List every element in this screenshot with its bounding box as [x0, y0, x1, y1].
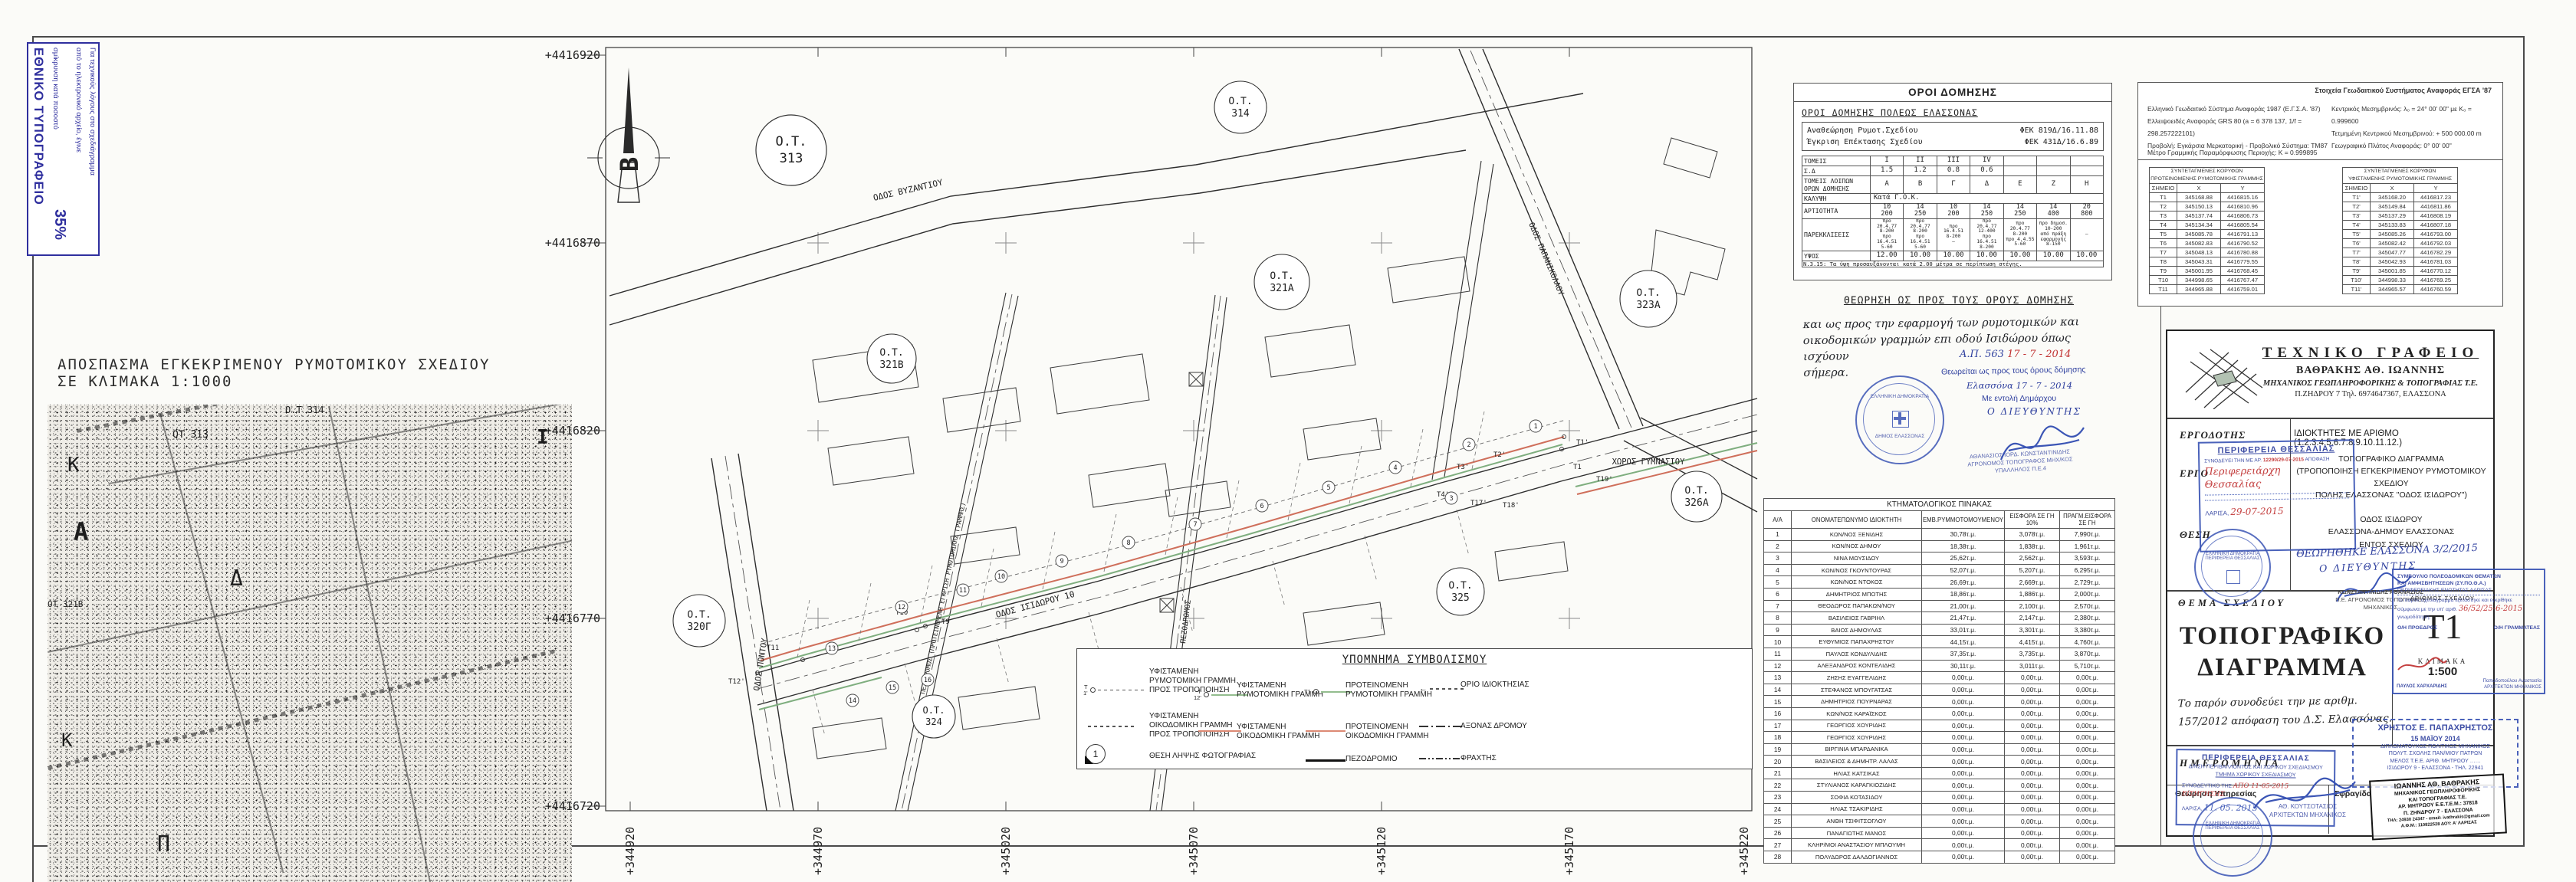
cadastral-cell: 2,570τ.μ. — [2060, 600, 2115, 612]
cadastral-cell: 33,01τ.μ. — [1922, 624, 2005, 636]
cadastral-cell: 3 — [1764, 552, 1792, 565]
cadastral-row: 1 ΚΩΝ/ΝΟΣ ΞΕΝΙΔΗΣ 30,78τ.μ. 3,078τ.μ. 7,… — [1764, 529, 2115, 541]
coords-cell: 345150.13 — [2177, 202, 2221, 211]
coords-cell: 4416769.25 — [2414, 275, 2458, 284]
north-arrow-icon: Β — [587, 67, 670, 202]
cadastral-cell: ΔΗΜΗΤΡΙΟΣ ΜΠΟΤΗΣ — [1792, 588, 1922, 600]
legend-symbol-prefix: Τ 1' — [1083, 684, 1088, 696]
geo-line: Τετμημένη Κεντρικού Μεσημβρινού: + 500 0… — [2331, 127, 2496, 139]
stamp-text: ΔΗΜΟΣ ΕΛΑΣΣΟΝΑΣ — [1857, 434, 1943, 439]
stamp-text: ΕΛΛΗΝΙΚΗ ΔΗΜΟΚΡΑΤΙΑ — [1857, 394, 1943, 399]
cadastral-cell: 3,735τ.μ. — [2005, 648, 2060, 660]
stamp-text: ΕΛΛΗΝΙΚΗ ΔΗΜΟΚΡΑΤΙΑ ΠΕΡΙΦΕΡΕΙΑ ΘΕΣΣΑΛΙΑΣ — [2196, 552, 2269, 561]
terms-cell: – — [2070, 218, 2103, 251]
point-circle-icon — [1204, 692, 1209, 697]
cadastral-cell: 20 — [1764, 756, 1792, 768]
cadastral-cell: 6,295τ.μ. — [2060, 564, 2115, 576]
stamp-name: ΠΑΥΛΟΣ ΧΑΡΧΑΡΙΔΗΣ — [2397, 684, 2447, 690]
coords-cell: 4416793.00 — [2414, 229, 2458, 238]
cadastral-cell: 7,990τ.μ. — [2060, 529, 2115, 541]
terms-cell: ΙV — [1970, 156, 2003, 166]
drawing-title: ΤΟΠΟΓΡΑΦΙΚΟΔΙΑΓΡΑΜΜΑ — [2175, 621, 2390, 684]
stamp-line: γνωμοδότηση. — [2397, 614, 2540, 621]
cadastral-row: 28 ΠΟΛΥΔΩΡΟΣ ΔΑΛΔΟΓΙΑΝΝΟΣ 0,00τ.μ. 0,00τ… — [1764, 851, 2115, 864]
coords-row: Τ6'345082.424416792.03 — [2343, 238, 2458, 248]
cadastral-row: 27 ΚΛΗΡ/ΜΟΙ ΑΝΑΣΤΑΣΙΟΥ ΜΠΛΟΥΜΗ 0,00τ.μ. … — [1764, 839, 2115, 851]
coords-cell: 4416805.54 — [2221, 220, 2265, 229]
stamp-title: ΑΡΧΙΤΕΚΤΩΝ ΜΗΧΑΝΙΚΟΣ — [2242, 812, 2373, 820]
stamp-line: ΑΠΟΦΑΣΗ — [2305, 457, 2329, 463]
cadastral-cell: 0,00τ.μ. — [2005, 743, 2060, 756]
cadastral-title: ΚΤΗΜΑΤΟΛΟΓΙΚΟΣ ΠΙΝΑΚΑΣ — [1764, 499, 2115, 511]
terms-cell: 10.00 — [1970, 251, 2003, 261]
cadastral-cell: 26 — [1764, 827, 1792, 839]
block-314: Ο.Τ. 314 — [1214, 81, 1267, 133]
cadastral-cell: 0,00τ.μ. — [2060, 839, 2115, 851]
ergodotis-label: ΕΡΓΟΔΟΤΗΣ — [2180, 429, 2246, 441]
legend-label: ΘΕΣΗ ΛΗΨΗΣ ΦΩΤΟΓΡΑΦΙΑΣ — [1149, 752, 1256, 761]
cadastral-cell: 0,00τ.μ. — [2005, 684, 2060, 696]
coords-cell: Τ6 — [2150, 238, 2177, 248]
block-313: Ο.Τ. 313 — [756, 115, 826, 185]
cadastral-cell: ΑΝΘΗ ΤΣΙΦΙΤΣΟΓΛΟΥ — [1792, 815, 1922, 828]
cadastral-row: 4 ΚΩΝ/ΝΟΣ ΓΚΟΥΝΤΟΥΡΑΣ 52,07τ.μ. 5,207τ.μ… — [1764, 564, 2115, 576]
cadastral-cell: 2,729τ.μ. — [2060, 576, 2115, 589]
cadastral-cell: 10 — [1764, 636, 1792, 648]
coords-cell: 4416807.18 — [2414, 220, 2458, 229]
office-profession: ΜΗΧΑΝΙΚΟΣ ΓΕΩΠΛΗΡΟΦΟΡΙΚΗΣ & ΤΟΠΟΓΡΑΦΙΑΣ … — [2259, 379, 2482, 388]
cadastral-cell: 19 — [1764, 743, 1792, 756]
office-logo-icon — [2184, 348, 2265, 409]
cadastral-row: 6 ΔΗΜΗΤΡΙΟΣ ΜΠΟΤΗΣ 18,86τ.μ. 1,886τ.μ. 2… — [1764, 588, 2115, 600]
cadastral-cell: 44,15τ.μ. — [1922, 636, 2005, 648]
coords-cell: 345134.34 — [2177, 220, 2221, 229]
cadastral-cell: ΚΩΝ/ΝΟΣ ΓΚΟΥΝΤΟΥΡΑΣ — [1792, 564, 1922, 576]
cadastral-cell: 12 — [1764, 660, 1792, 672]
cadastral-cell: ΖΗΣΗΣ ΕΥΑΓΓΕΛΙΔΗΣ — [1792, 672, 1922, 684]
cadastral-cell: 4,415τ.μ. — [2005, 636, 2060, 648]
cadastral-cell: 18 — [1764, 732, 1792, 744]
block-321a: Ο.Τ. 321Α — [1254, 254, 1309, 310]
cadastral-cell: ΒΙΡΓΙΝΙΑ ΜΠΑΡΔΑΝΙΚΑ — [1792, 743, 1922, 756]
cadastral-cell: 1,886τ.μ. — [2005, 588, 2060, 600]
terms-cell: ΙΙ — [1904, 156, 1937, 166]
cadastral-cell: ΔΗΜΗΤΡΙΟΣ ΠΟΥΡΝΑΡΑΣ — [1792, 696, 1922, 708]
cadastral-cell: 0,00τ.μ. — [1922, 684, 2005, 696]
cadastral-cell: 17 — [1764, 720, 1792, 732]
coords-row: Τ1345168.884416815.16 — [2150, 192, 2265, 202]
coords-cell: 4416810.96 — [2221, 202, 2265, 211]
cadastral-cell: 26,69τ.μ. — [1922, 576, 2005, 589]
cadastral-cell: 0,00τ.μ. — [2005, 696, 2060, 708]
terms-cell: προ δημοσ. 10-200 από πράξη εφαρμογής 8-… — [2037, 218, 2070, 251]
legend-label: ΠΡΟΤΕΙΝΟΜΕΝΗ ΟΙΚΟΔΟΜΙΚΗ ΓΡΑΜΜΗ — [1345, 723, 1429, 741]
office-name: ΒΑΘΡΑΚΗΣ ΑΘ. ΙΩΑΝΝΗΣ — [2259, 365, 2482, 377]
cadastral-cell: 0,00τ.μ. — [1922, 827, 2005, 839]
cadastral-cell: 21,00τ.μ. — [1922, 600, 2005, 612]
cadastral-cell: 0,00τ.μ. — [2060, 779, 2115, 792]
cadastral-cell: 18,86τ.μ. — [1922, 588, 2005, 600]
coords-cell: 4416779.55 — [2221, 257, 2265, 266]
fek-value: ΦΕΚ 431Δ/16.6.89 — [2025, 136, 2098, 148]
legend-symbol-sidewalk — [1306, 759, 1345, 762]
terms-row-label: ΚΑΛΥΨΗ — [1802, 194, 1871, 204]
terms-cell: 10.00 — [2070, 251, 2103, 261]
coords-row: Τ8'345042.934416781.03 — [2343, 257, 2458, 266]
legend-symbol-prefix: Τ 12' — [1194, 689, 1201, 700]
coords-row: Τ3345137.744416806.73 — [2150, 211, 2265, 220]
coords-cell: Τ4 — [2150, 220, 2177, 229]
svg-text:314: 314 — [1231, 108, 1250, 120]
protocol-number: Α.Π. 563 — [1960, 349, 2004, 360]
coords-title: ΣΥΝΤΕΤΑΓΜΕΝΕΣ ΚΟΡΥΦΩΝΠΡΟΤΕΙΝΟΜΕΝΗΣ ΡΥΜΟΤ… — [2150, 169, 2263, 182]
legend-label: ΥΦΙΣΤΑΜΕΝΗ ΟΙΚΟΔΟΜΙΚΗ ΓΡΑΜΜΗ — [1237, 723, 1320, 741]
legend-symbol-proposed-oik — [1306, 730, 1345, 732]
cadastral-row: 20 ΒΑΣΙΛΕΙΟΣ & ΔΗΜΗΤΡ. ΛΑΛΑΣ 0,00τ.μ. 0,… — [1764, 756, 2115, 768]
t-label: Τ18' — [1503, 502, 1520, 510]
coords-cell: Τ8' — [2343, 257, 2371, 266]
cadastral-cell: 0,00τ.μ. — [2060, 743, 2115, 756]
block-326a: Ο.Τ. 326Α — [1671, 471, 1722, 522]
svg-text:323Α: 323Α — [1636, 300, 1660, 311]
terms-cell: προ 20.4.77 8-200 προ 16.4.51 5-60 — [1870, 218, 1903, 251]
t-label: Τ1 — [1573, 464, 1582, 471]
cadastral-cell: ΠΑΝΑΓΙΩΤΗΣ ΜΑΝΟΣ — [1792, 827, 1922, 839]
cadastral-cell: 0,00τ.μ. — [1922, 767, 2005, 779]
cadastral-cell: 0,00τ.μ. — [2005, 792, 2060, 804]
coords-row: Τ11'344965.574416760.59 — [2343, 284, 2458, 293]
t-label: Τ19' — [1596, 476, 1613, 484]
cadastral-cell: 0,00τ.μ. — [2005, 779, 2060, 792]
coords-cell: Τ1' — [2343, 192, 2371, 202]
cadastral-row: 16 ΚΩΝ/ΝΟΣ ΚΑΡΑΪΣΚΟΣ 0,00τ.μ. 0,00τ.μ. 0… — [1764, 707, 2115, 720]
coords-cell: 4416759.01 — [2221, 284, 2265, 293]
terms-cell: 10.00 — [1937, 251, 1970, 261]
coords-cell: 4416781.03 — [2414, 257, 2458, 266]
stamp-title: ΑΡΧΙΤΕΚΤΩΝ ΜΗΧΑΝΙΚΟΣ — [2484, 684, 2541, 690]
coords-cell: 4416806.73 — [2221, 211, 2265, 220]
block-321b: Ο.Τ. 321Β — [867, 334, 916, 383]
svg-text:321Β: 321Β — [879, 359, 903, 371]
legend-label: ΑΞΟΝΑΣ ΔΡΟΜΟΥ — [1460, 722, 1527, 731]
cadastral-cell: 0,00τ.μ. — [2005, 767, 2060, 779]
coords-cell: 345043.31 — [2177, 257, 2221, 266]
cadastral-cell: 0,00τ.μ. — [2060, 851, 2115, 864]
coords-cell: Τ3 — [2150, 211, 2177, 220]
coords-cell: 345085.26 — [2371, 229, 2414, 238]
cadastral-section: ΚΤΗΜΑΤΟΛΟΓΙΚΟΣ ΠΙΝΑΚΑΣ Α/ΑΟΝΟΜΑΤΕΠΩΝΥΜΟ … — [1763, 498, 2114, 864]
cadastral-cell: 0,00τ.μ. — [1922, 696, 2005, 708]
stamp-city: ΛΑΡΙΣΑ, — [2182, 807, 2203, 812]
stamp-line: ΙΣΙΔΩΡΟΥ 9 - ΕΛΑΣΣΟΝΑ - ΤΗΛ. 22941 — [2357, 765, 2514, 772]
svg-text:13: 13 — [828, 645, 836, 653]
coords-cell: Τ10 — [2150, 275, 2177, 284]
coords-header: Χ — [2371, 183, 2414, 192]
cadastral-row: 15 ΔΗΜΗΤΡΙΟΣ ΠΟΥΡΝΑΡΑΣ 0,00τ.μ. 0,00τ.μ.… — [1764, 696, 2115, 708]
cadastral-cell: 0,00τ.μ. — [2005, 827, 2060, 839]
cadastral-row: 7 ΘΕΟΔΩΡΟΣ ΠΑΠΑΚΩΝ/ΝΟΥ 21,00τ.μ. 2,100τ.… — [1764, 600, 2115, 612]
coords-cell: Τ6' — [2343, 238, 2371, 248]
cadastral-cell: 52,07τ.μ. — [1922, 564, 2005, 576]
svg-text:324: 324 — [925, 716, 942, 727]
cadastral-cell: 2,100τ.μ. — [2005, 600, 2060, 612]
cadastral-cell: 21,47τ.μ. — [1922, 612, 2005, 625]
coords-row: Τ4'345133.834416807.18 — [2343, 220, 2458, 229]
cadastral-cell: 25,62τ.μ. — [1922, 552, 2005, 565]
cadastral-cell: ΚΩΝ/ΝΟΣ ΚΑΡΑΪΣΚΟΣ — [1792, 707, 1922, 720]
geo-line: Κεντρικός Μεσημβρινός: λ₀ = 24° 00' 00" … — [2331, 103, 2496, 127]
coords-cell: 4416791.13 — [2221, 229, 2265, 238]
cadastral-row: 23 ΣΟΦΙΑ ΚΟΤΑΣΙΔΟΥ 0,00τ.μ. 0,00τ.μ. 0,0… — [1764, 792, 2115, 804]
cadastral-cell: 0,00τ.μ. — [2060, 803, 2115, 815]
theorisi-line3: Με εντολή Δημάρχου — [1982, 394, 2056, 403]
cadastral-row: 19 ΒΙΡΓΙΝΙΑ ΜΠΑΡΔΑΝΙΚΑ 0,00τ.μ. 0,00τ.μ.… — [1764, 743, 2115, 756]
terms-row-label: ΑΡΤΙΟΤΗΤΑ — [1802, 204, 1871, 219]
cadastral-row: 11 ΠΑΥΛΟΣ ΚΟΝΔΥΛΙΔΗΣ 37,35τ.μ. 3,735τ.μ.… — [1764, 648, 2115, 660]
x-label: +345120 — [1375, 827, 1388, 875]
legend-symbol-fence — [1419, 758, 1465, 759]
cadastral-row: 14 ΣΤΕΦΑΝΟΣ ΜΠΟΥΓΑΤΣΑΣ 0,00τ.μ. 0,00τ.μ.… — [1764, 684, 2115, 696]
cadastral-cell: 27 — [1764, 839, 1792, 851]
y-label: +4416870 — [545, 236, 600, 250]
cadastral-cell: ΣΤΕΦΑΝΟΣ ΜΠΟΥΓΑΤΣΑΣ — [1792, 684, 1922, 696]
coords-table-proposed: ΣΥΝΤΕΤΑΓΜΕΝΕΣ ΚΟΡΥΦΩΝΠΡΟΤΕΙΝΟΜΕΝΗΣ ΡΥΜΟΤ… — [2149, 167, 2265, 294]
coords-cell: 345042.93 — [2371, 257, 2414, 266]
x-label: +345170 — [1562, 827, 1576, 875]
legend-symbol-existing-rym-mod: Τ 1' — [1083, 684, 1147, 696]
stamp-name: ΧΡΗΣΤΟΣ Ε. ΠΑΠΑΧΡΗΣΤΟΣ — [2357, 723, 2514, 734]
cadastral-cell: 0,00τ.μ. — [1922, 672, 2005, 684]
coords-cell: 345133.83 — [2371, 220, 2414, 229]
coords-row: Τ5345085.784416791.13 — [2150, 229, 2265, 238]
office-title: ΤΕΧΝΙΚΟ ΓΡΑΦΕΙΟ — [2259, 345, 2482, 362]
coords-cell: 4416768.45 — [2221, 266, 2265, 275]
terms-cell: Β — [1904, 176, 1937, 194]
coords-row: Τ8345043.314416779.55 — [2150, 257, 2265, 266]
stamp-city: ΛΑΡΙΣΑ, — [2205, 510, 2229, 517]
cadastral-cell: ΗΛΙΑΣ ΚΑΤΣΙΚΑΣ — [1792, 767, 1922, 779]
terms-cell: 1.2 — [1904, 166, 1937, 176]
svg-text:12: 12 — [898, 604, 905, 611]
street-label-pezodromos: ΠΕΖΟΔΡΟΜΟΣ — [1179, 599, 1193, 644]
stamp-line: ΣΥΝΟΔΕΥΕΙ ΤΗΝ ΜΕ ΑΡ. — [2204, 457, 2262, 464]
geodetic-box: Στοιχεία Γεωδαιτικού Συστήματος Αναφοράς… — [2137, 82, 2503, 307]
terms-cell — [2003, 156, 2036, 166]
cadastral-cell: 0,00τ.μ. — [1922, 707, 2005, 720]
coords-header: ΣΗΜΕΙΟ — [2150, 183, 2177, 192]
cadastral-cell: 3,078τ.μ. — [2005, 529, 2060, 541]
terms-cell: 0.8 — [1937, 166, 1970, 176]
legend-label: ΦΡΑΧΤΗΣ — [1460, 754, 1497, 763]
terms-cell: Κατά Γ.Ο.Κ. — [1870, 194, 2103, 204]
cadastral-cell: ΣΤΥΛΙΑΝΟΣ ΚΑΡΑΓΚΙΟΖΙΔΗΣ — [1792, 779, 1922, 792]
cadastral-cell: ΣΟΦΙΑ ΚΟΤΑΣΙΔΟΥ — [1792, 792, 1922, 804]
terms-cell: 14 250 — [2003, 204, 2036, 219]
stamp-script: Περιφερειάρχη Θεσσαλίας — [2204, 464, 2349, 492]
cadastral-cell: ΠΑΥΛΟΣ ΚΟΝΔΥΛΙΔΗΣ — [1792, 648, 1922, 660]
terms-cell — [2070, 156, 2103, 166]
cadastral-cell: 2,147τ.μ. — [2005, 612, 2060, 625]
cadastral-cell: 3,380τ.μ. — [2060, 624, 2115, 636]
legend-title: ΥΠΟΜΝΗΜΑ ΣΥΜΒΟΛΙΣΜΟΥ — [1077, 654, 1752, 666]
x-axis-labels: +344920 +344970 +345020 +345070 +345120 … — [623, 827, 1751, 875]
theorisi-line2: Ελασσόνα 17 - 7 - 2014 — [1967, 380, 2072, 391]
label-gymnasiou: ΧΩΡΟΣ ΓΥΜΝΑΣΙΟΥ — [1612, 457, 1686, 467]
cadastral-cell: 16 — [1764, 707, 1792, 720]
terms-cell: 12.00 — [1870, 251, 1903, 261]
cadastral-cell: ΒΑΙΟΣ ΔΗΜΟΥΛΑΣ — [1792, 624, 1922, 636]
terms-cell: προ 20.4.77 12-400 προ 16.4.51 8-200 — [1970, 218, 2003, 251]
coords-cell: 4416792.03 — [2414, 238, 2458, 248]
t-label: Τ1' — [1576, 439, 1589, 447]
cadastral-row: 21 ΗΛΙΑΣ ΚΑΤΣΙΚΑΣ 0,00τ.μ. 0,00τ.μ. 0,00… — [1764, 767, 2115, 779]
legend-symbol-existing-oik — [1198, 730, 1241, 732]
coords-cell: Τ2' — [2343, 202, 2371, 211]
cadastral-cell: 0,00τ.μ. — [1922, 792, 2005, 804]
cadastral-cell: 3,593τ.μ. — [2060, 552, 2115, 565]
terms-cell: Α — [1870, 176, 1903, 194]
sypotha-stamp: ΣΥΜΒΟΥΛΙΟ ΠΟΛΕΟΔΟΜΙΚΩΝ ΘΕΜΑΤΩΝ ΚΑΙ ΑΜΦΙΣ… — [2392, 569, 2545, 694]
coords-cell: 4416815.16 — [2221, 192, 2265, 202]
terms-box-title: ΟΡΟΙ ΔΟΜΗΣΗΣ — [1794, 84, 2111, 102]
cadastral-cell: 6 — [1764, 588, 1792, 600]
cadastral-header: ΕΜΒ.ΡΥΜΜΟΤΟΜΟΥΜΕΝΟΥ — [1922, 511, 2005, 529]
terms-footnote: Ν.3.15: Τα ύψη προσαυξάνονται κατά 2.00 … — [1802, 261, 2104, 267]
cadastral-cell: 0,00τ.μ. — [1922, 803, 2005, 815]
block-323a: Ο.Τ. 323Α — [1620, 271, 1677, 327]
cadastral-cell: ΒΑΣΙΛΕΙΟΣ ΓΑΒΡΙΗΛ — [1792, 612, 1922, 625]
geo-line: Ελλειψοειδές Αναφοράς GRS 80 (a = 6 378 … — [2147, 115, 2331, 139]
cadastral-row: 2 ΚΩΝ/ΝΟΣ ΔΗΜΟΥ 18,38τ.μ. 1,838τ.μ. 1,96… — [1764, 540, 2115, 552]
terms-cell: 10 200 — [1937, 204, 1970, 219]
coords-cell: 4416808.19 — [2414, 211, 2458, 220]
x-label: +344920 — [623, 827, 637, 875]
block-324: Ο.Τ. 324 — [912, 695, 955, 738]
cadastral-cell: ΠΟΛΥΔΩΡΟΣ ΔΑΛΔΟΓΙΑΝΝΟΣ — [1792, 851, 1922, 864]
svg-text:326Α: 326Α — [1684, 497, 1708, 509]
coords-cell: Τ3' — [2343, 211, 2371, 220]
coords-cell: 345085.78 — [2177, 229, 2221, 238]
terms-cell: 10 200 — [1870, 204, 1903, 219]
terms-cell: Γ — [1937, 176, 1970, 194]
terms-cell — [2070, 166, 2103, 176]
cadastral-row: 17 ΓΕΩΡΓΙΟΣ ΧΟΥΡΙΔΗΣ 0,00τ.μ. 0,00τ.μ. 0… — [1764, 720, 2115, 732]
t-label: Τ3' — [1457, 464, 1469, 471]
coords-row: Τ9'345001.854416770.12 — [2343, 266, 2458, 275]
cadastral-cell: 0,00τ.μ. — [1922, 839, 2005, 851]
cadastral-cell: ΓΕΩΡΓΙΟΣ ΧΟΥΡΙΔΗΣ — [1792, 720, 1922, 732]
svg-text:Ο.Τ.: Ο.Τ. — [1228, 96, 1252, 107]
cadastral-cell: 23 — [1764, 792, 1792, 804]
coords-cell: Τ9 — [2150, 266, 2177, 275]
terms-row-label: ΤΟΜΕΙΣ — [1802, 156, 1871, 166]
cadastral-cell: 2,669τ.μ. — [2005, 576, 2060, 589]
coords-cell: 345048.13 — [2177, 248, 2221, 257]
cadastral-cell: 0,00τ.μ. — [2005, 707, 2060, 720]
cadastral-cell: ΑΛΕΞΑΝΔΡΟΣ ΚΟΝΤΕΛΙΔΗΣ — [1792, 660, 1922, 672]
coords-cell: Τ2 — [2150, 202, 2177, 211]
svg-text:313: 313 — [780, 151, 803, 166]
coords-cell: 345137.29 — [2371, 211, 2414, 220]
cadastral-cell: 22 — [1764, 779, 1792, 792]
terms-table: ΤΟΜΕΙΣΙΙΙΙΙΙΙV Σ.Δ1.51.20.80.6 ΤΟΜΕΙΣ ΛΟ… — [1802, 156, 2104, 267]
cadastral-row: 12 ΑΛΕΞΑΝΔΡΟΣ ΚΟΝΤΕΛΙΔΗΣ 30,11τ.μ. 3,011… — [1764, 660, 2115, 672]
cadastral-cell: 0,00τ.μ. — [2060, 792, 2115, 804]
coords-cell: 345001.95 — [2177, 266, 2221, 275]
street-label-pezodromos-long: ΠΕΖΟΔΡΟΜΟΣ (ΠΡΟΤΕΙΝΟΜΕΝΗ ΕΓΚΡΙΣΗ ΡΥΜΟΤΟΜ… — [919, 502, 967, 695]
signature-icon — [2395, 656, 2449, 676]
cadastral-cell: ΕΥΘΥΜΙΟΣ ΠΑΠΑΧΡΗΣΤΟΥ — [1792, 636, 1922, 648]
coords-cell: Τ5' — [2343, 229, 2371, 238]
terms-cell: 10.00 — [2037, 251, 2070, 261]
protocol-date: 17 - 7 - 2014 — [2007, 349, 2071, 360]
svg-text:Ο.Τ.: Ο.Τ. — [879, 347, 903, 359]
legend-symbol-road-axis — [1419, 726, 1465, 727]
stamp-line: ΚΑΙ ΑΜΦΙΣΒΗΤΗΣΕΩΝ (ΣΥ.ΠΟ.Θ.Α.) — [2397, 580, 2540, 587]
cadastral-cell: 3,870τ.μ. — [2060, 648, 2115, 660]
legend-symbol-existing-oik-mod — [1088, 726, 1137, 727]
stamp-line: ΣΥΜΒΟΥΛΙΟ ΠΟΛΕΟΔΟΜΙΚΩΝ ΘΕΜΑΤΩΝ — [2397, 573, 2540, 580]
coords-cell: Τ11' — [2343, 284, 2371, 293]
x-label: +344970 — [811, 827, 825, 875]
stamp-line: Το παρόν σχεδιάγραμμα εξετάστηκε και εγκ… — [2397, 597, 2540, 604]
svg-text:15: 15 — [889, 684, 896, 692]
svg-text:321Α: 321Α — [1270, 283, 1293, 294]
cadastral-cell: 2,380τ.μ. — [2060, 612, 2115, 625]
svg-text:2: 2 — [1467, 441, 1470, 449]
street-label-vyzantiou: ΟΔΟΣ ΒΥΖΑΝΤΙΟΥ — [872, 177, 945, 203]
svg-text:1: 1 — [1533, 423, 1537, 431]
cadastral-cell: 0,00τ.μ. — [1922, 743, 2005, 756]
terms-cell: Η — [2070, 176, 2103, 194]
stamp-line: ΔΙΠΛΩΜΑΤΟΥΧΟΣ ΠΟΛΙΤΙΚΟΣ ΜΗΧΑΝΙΚΟΣ — [2357, 743, 2514, 750]
cadastral-cell: 0,00τ.μ. — [2060, 672, 2115, 684]
stamp-name: ΑΘ. ΚΟΥΤΣΟΤΑΣΙΟΣ — [2242, 803, 2373, 812]
y-axis-labels: +4416920 +4416870 +4416820 +4416770 +441… — [545, 48, 600, 813]
legend-symbol-property-limit: ← — [1419, 684, 1464, 693]
terms-cell: 0.6 — [1970, 166, 2003, 176]
coords-cell: 4416767.47 — [2221, 275, 2265, 284]
fek-label: Έγκριση Επέκτασης Σχεδίου — [1807, 136, 1923, 148]
legend-box: ΥΠΟΜΝΗΜΑ ΣΥΜΒΟΛΙΣΜΟΥ Τ 1' ΥΦΙΣΤΑΜΕΝΗ ΡΥΜ… — [1076, 648, 1753, 769]
cadastral-cell: ΚΩΝ/ΝΟΣ ΝΤΟΚΟΣ — [1792, 576, 1922, 589]
topographic-diagram-sheet: { "print_stamp": { "title": "ΕΘΝΙΚΟ ΤΥΠΟ… — [0, 0, 2576, 882]
coords-row: Τ2345150.134416810.96 — [2150, 202, 2265, 211]
geodetic-title: Στοιχεία Γεωδαιτικού Συστήματος Αναφοράς… — [2138, 87, 2492, 94]
cadastral-cell: 0,00τ.μ. — [1922, 779, 2005, 792]
coords-cell: 345149.84 — [2371, 202, 2414, 211]
cadastral-cell: 0,00τ.μ. — [2060, 815, 2115, 828]
terms-cell: 14 250 — [1904, 204, 1937, 219]
coords-header: Χ — [2177, 183, 2221, 192]
legend-symbol-prefix: Τ1 — [1304, 689, 1311, 695]
terms-cell: 14 400 — [2037, 204, 2070, 219]
cadastral-cell: 0,00τ.μ. — [2005, 839, 2060, 851]
cadastral-cell: 3,011τ.μ. — [2005, 660, 2060, 672]
stamp-role: Ο/Η ΠΡΟΕΔΡΟΣ — [2397, 625, 2437, 631]
stamp-number: 36/52/25-6-2015 — [2459, 605, 2522, 613]
cadastral-cell: 3,301τ.μ. — [2005, 624, 2060, 636]
terms-cell — [2037, 156, 2070, 166]
coords-cell: Τ10' — [2343, 275, 2371, 284]
y-label: +4416920 — [545, 48, 600, 62]
terms-subtitle: ΟΡΟΙ ΔΟΜΗΣΗΣ ΠΟΛΕΩΣ ΕΛΑΣΣΟΝΑΣ — [1802, 107, 2111, 118]
coords-row: Τ5'345085.264416793.00 — [2343, 229, 2458, 238]
coords-row: Τ10344998.654416767.47 — [2150, 275, 2265, 284]
coords-cell: 4416770.12 — [2414, 266, 2458, 275]
cadastral-cell: 0,00τ.μ. — [1922, 756, 2005, 768]
x-label: +345220 — [1737, 827, 1751, 875]
